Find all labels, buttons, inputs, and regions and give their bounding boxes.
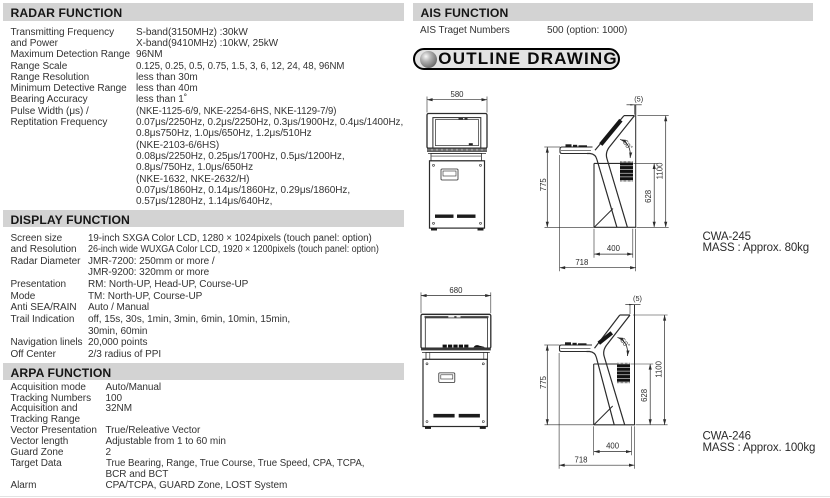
svg-text:CWA-246: CWA-246 <box>703 430 751 442</box>
svg-text:680: 680 <box>449 286 463 295</box>
svg-text:775: 775 <box>539 178 548 192</box>
svg-text:400: 400 <box>607 244 621 253</box>
svg-text:MASS : Approx. 100kg: MASS : Approx. 100kg <box>703 442 816 454</box>
svg-text:628: 628 <box>644 190 653 203</box>
svg-text:MASS : Approx. 80kg: MASS : Approx. 80kg <box>703 242 809 254</box>
svg-text:(5): (5) <box>633 294 642 303</box>
svg-text:1100: 1100 <box>655 360 664 377</box>
svg-text:775: 775 <box>539 375 548 389</box>
svg-text:(5): (5) <box>634 94 643 103</box>
svg-text:580: 580 <box>450 90 464 99</box>
svg-text:718: 718 <box>574 455 587 464</box>
svg-text:628: 628 <box>640 389 649 402</box>
svg-text:400: 400 <box>606 442 620 451</box>
svg-text:718: 718 <box>575 258 588 267</box>
svg-text:1100: 1100 <box>656 162 665 179</box>
